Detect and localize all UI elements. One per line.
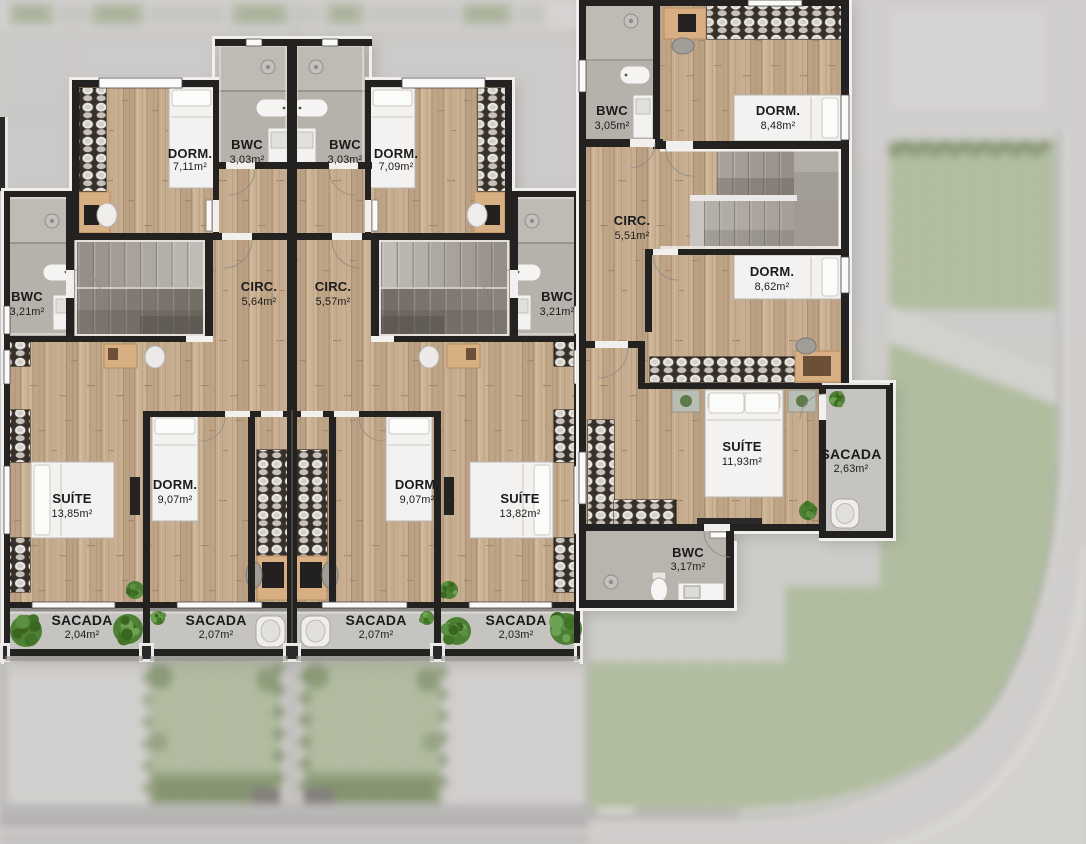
svg-text:SACADA: SACADA	[820, 446, 881, 462]
svg-text:3,21m²: 3,21m²	[540, 306, 575, 318]
svg-text:2,07m²: 2,07m²	[359, 629, 394, 641]
svg-text:DORM.: DORM.	[756, 103, 800, 118]
svg-text:BWC: BWC	[541, 289, 573, 304]
svg-text:7,09m²: 7,09m²	[379, 161, 414, 173]
svg-text:DORM.: DORM.	[153, 477, 197, 492]
svg-text:DORM.: DORM.	[374, 146, 418, 161]
svg-text:SUÍTE: SUÍTE	[52, 491, 91, 506]
svg-text:8,48m²: 8,48m²	[761, 120, 796, 132]
svg-text:BWC: BWC	[672, 545, 704, 560]
svg-text:3,17m²: 3,17m²	[671, 561, 706, 573]
svg-text:DORM.: DORM.	[750, 264, 794, 279]
svg-text:SACADA: SACADA	[485, 612, 546, 628]
svg-text:SUÍTE: SUÍTE	[722, 439, 761, 454]
svg-text:BWC: BWC	[596, 103, 628, 118]
svg-text:DORM.: DORM.	[395, 477, 439, 492]
svg-text:3,21m²: 3,21m²	[10, 306, 45, 318]
svg-text:CIRC.: CIRC.	[241, 279, 277, 294]
svg-text:13,82m²: 13,82m²	[499, 508, 540, 520]
svg-text:SACADA: SACADA	[185, 612, 246, 628]
svg-text:5,51m²: 5,51m²	[615, 230, 650, 242]
svg-text:DORM.: DORM.	[168, 146, 212, 161]
svg-text:11,93m²: 11,93m²	[722, 456, 762, 468]
svg-text:BWC: BWC	[11, 289, 43, 304]
svg-text:CIRC.: CIRC.	[315, 279, 351, 294]
svg-text:SACADA: SACADA	[345, 612, 406, 628]
svg-text:9,07m²: 9,07m²	[158, 494, 193, 506]
svg-text:8,62m²: 8,62m²	[755, 281, 790, 293]
svg-text:2,07m²: 2,07m²	[199, 629, 234, 641]
svg-text:5,64m²: 5,64m²	[242, 296, 277, 308]
svg-text:BWC: BWC	[231, 137, 263, 152]
svg-text:13,85m²: 13,85m²	[51, 508, 92, 520]
svg-text:SACADA: SACADA	[51, 612, 112, 628]
svg-text:3,05m²: 3,05m²	[595, 120, 630, 132]
svg-text:2,03m²: 2,03m²	[499, 629, 534, 641]
svg-text:3,03m²: 3,03m²	[230, 154, 265, 166]
svg-text:CIRC.: CIRC.	[614, 213, 650, 228]
svg-text:2,63m²: 2,63m²	[834, 463, 869, 475]
svg-text:5,57m²: 5,57m²	[316, 296, 351, 308]
svg-text:9,07m²: 9,07m²	[400, 494, 435, 506]
svg-text:SUÍTE: SUÍTE	[500, 491, 539, 506]
svg-text:BWC: BWC	[329, 137, 361, 152]
svg-text:7,11m²: 7,11m²	[173, 161, 207, 173]
svg-text:2,04m²: 2,04m²	[65, 629, 100, 641]
svg-text:3,03m²: 3,03m²	[328, 154, 363, 166]
